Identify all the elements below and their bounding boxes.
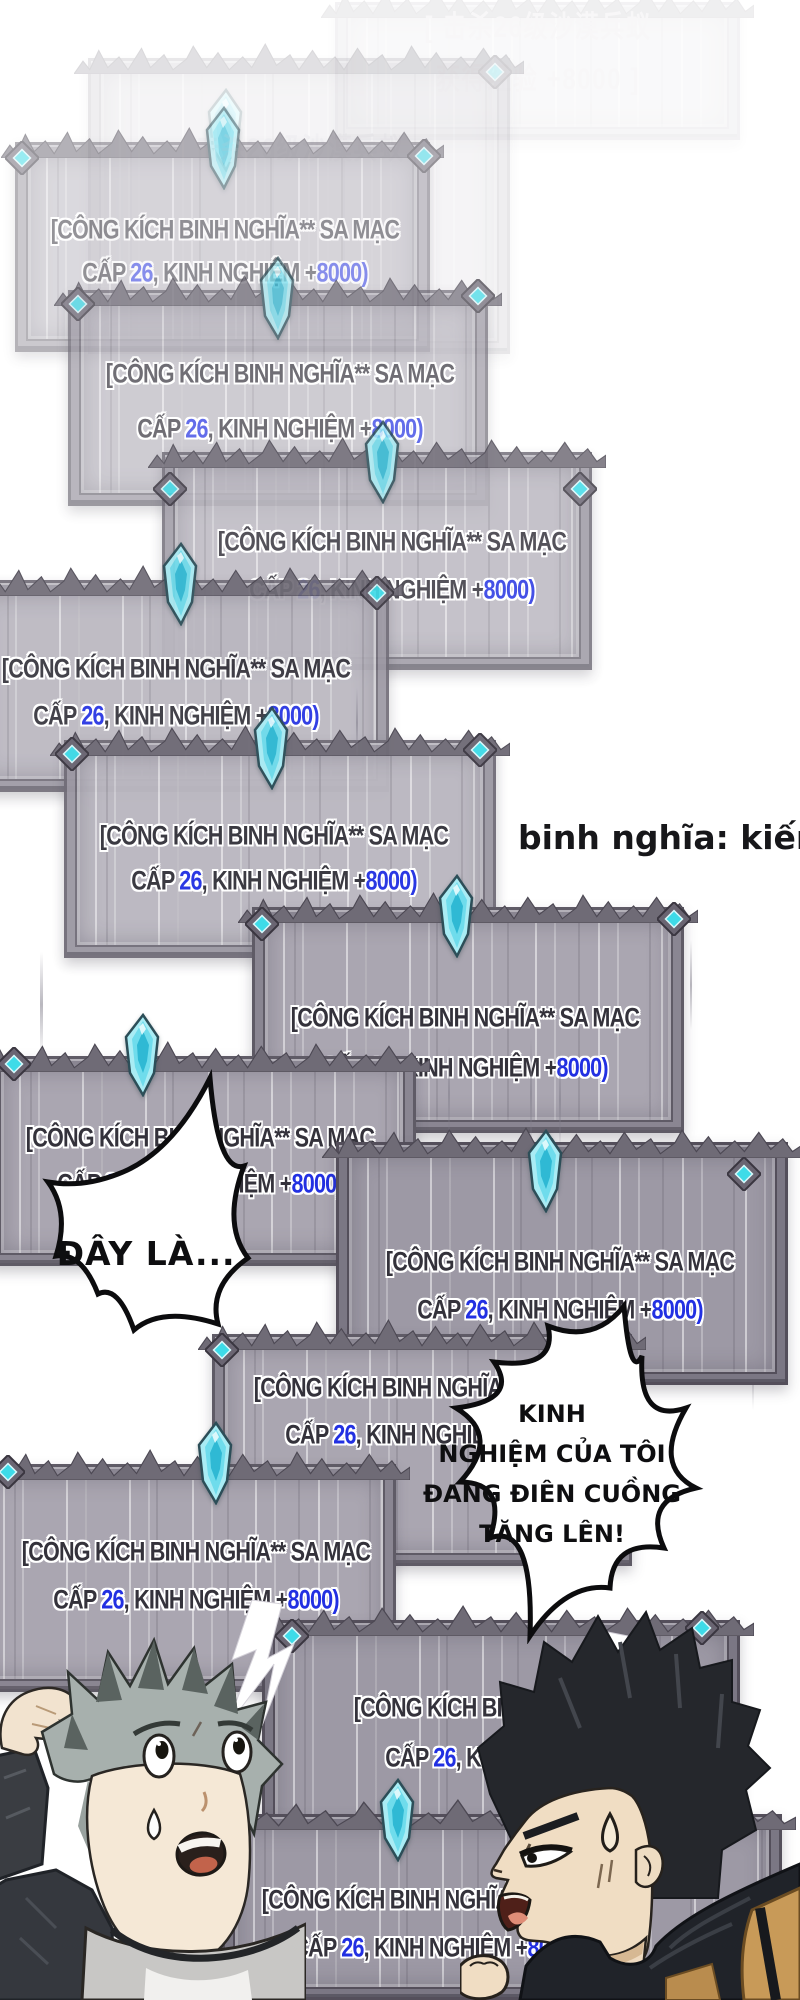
corner-gem-icon	[563, 472, 597, 506]
corner-gem-icon	[5, 141, 39, 175]
corner-gem-icon	[360, 576, 394, 610]
panel-text-segment: CẤP	[53, 1585, 101, 1615]
corner-gem-icon	[463, 733, 497, 767]
panel-text-segment: +	[472, 575, 484, 605]
light-streak	[690, 940, 692, 1030]
left-character-sleeve	[0, 1748, 48, 1880]
corner-gem-icon	[0, 1455, 25, 1489]
panel-text-number: 26	[341, 1933, 363, 1963]
crystal-icon	[375, 1778, 421, 1862]
crystal-icon	[523, 1129, 569, 1213]
panel-text-number: 26	[333, 1420, 355, 1450]
right-character	[460, 1598, 800, 2000]
panel-text-number: 8000)	[484, 575, 535, 605]
panel-text-number: 26	[101, 1585, 123, 1615]
panel-text-line: [CÔNG KÍCH BINH NGHĨA** SA MẠC	[386, 1249, 734, 1276]
crystal-icon	[255, 256, 301, 340]
panel-text-line: [CÔNG KÍCH BINH NGHĨA** SA MẠC	[51, 217, 399, 244]
translator-note: binh nghĩa: kiến lính	[518, 818, 800, 857]
corner-gem-icon	[61, 287, 95, 321]
speech-bubble-kinh-nghiem: KINH NGHIỆM CỦA TÔI ĐANG ĐIÊN CUỒNG TĂNG…	[398, 1296, 706, 1644]
crystal-icon	[249, 706, 295, 790]
bubble-line: KINH	[398, 1394, 706, 1434]
corner-gem-icon	[407, 139, 441, 173]
bubble-line: ĐANG ĐIÊN CUỒNG	[398, 1474, 706, 1514]
light-streak	[356, 688, 358, 758]
panel-text-segment: +	[280, 1169, 292, 1199]
crystal-icon	[434, 874, 480, 958]
bubble-line: TĂNG LÊN!	[398, 1514, 706, 1554]
bubble-text: KINH NGHIỆM CỦA TÔI ĐANG ĐIÊN CUỒNG TĂNG…	[398, 1394, 706, 1554]
panel-text-number: 26	[433, 1743, 455, 1773]
panel-text-line: [CÔNG KÍCH BINH NGHĨA** SA MẠC	[2, 656, 350, 683]
panel-text-line: [CÔNG KÍCH BINH NGHĨA** SA MẠC	[218, 529, 566, 556]
corner-gem-icon	[657, 902, 691, 936]
left-character	[0, 1628, 306, 2000]
crystal-icon	[193, 1421, 239, 1505]
right-character-fist	[460, 1956, 508, 1999]
corner-gem-icon	[461, 279, 495, 313]
crystal-icon	[158, 542, 204, 626]
speech-bubble-shape	[22, 1062, 270, 1352]
comic-page: binh nghĩa: kiến lính ĐÂY LÀ... KINH NGH…	[0, 0, 800, 2000]
panel-text-line: [CÔNG KÍCH BINH NGHĨA** SA MẠC	[22, 1539, 370, 1566]
panel-text-line: [CÔNG KÍCH BINH NGHĨA** SA MẠC	[100, 823, 448, 850]
crystal-icon	[360, 420, 406, 504]
panel-text-segment: +	[545, 1053, 557, 1083]
panel-text-line: [CÔNG KÍCH BINH NGHĨA** SA MẠC	[291, 1005, 639, 1032]
speech-bubble-day-la: ĐÂY LÀ...	[22, 1062, 270, 1352]
corner-gem-icon	[153, 472, 187, 506]
crystal-icon	[201, 106, 247, 190]
panel-text-segment: CẤP	[285, 1420, 333, 1450]
bubble-line: NGHIỆM CỦA TÔI	[398, 1434, 706, 1474]
panel-text-number: 8000)	[557, 1053, 608, 1083]
corner-gem-icon	[245, 907, 279, 941]
panel-text-segment: CẤP	[385, 1743, 433, 1773]
panel-text-line: [ 击杀26级沙漠兵蚁	[425, 13, 652, 43]
bubble-text: ĐÂY LÀ...	[22, 1234, 270, 1273]
panel-text-number: 26	[179, 866, 201, 896]
panel-text-segment: CẤP	[131, 866, 179, 896]
corner-gem-icon	[55, 737, 89, 771]
corner-gem-icon	[727, 1157, 761, 1191]
panel-text-line: [CÔNG KÍCH BINH NGHĨA** SA MẠC	[106, 361, 454, 388]
corner-gem-icon	[478, 55, 512, 89]
debris-edge	[74, 42, 524, 74]
